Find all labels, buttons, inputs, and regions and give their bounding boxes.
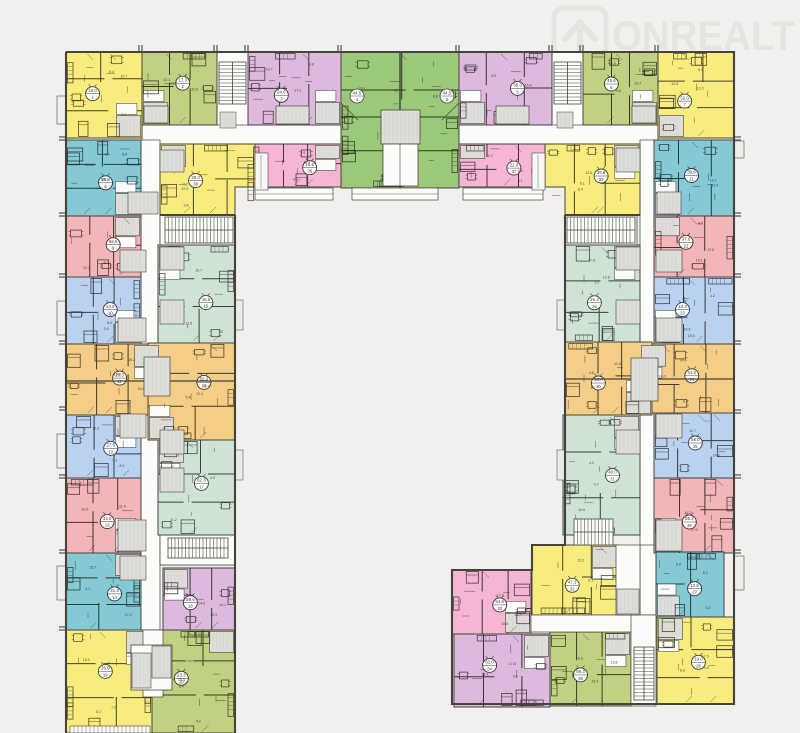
svg-text:45.6: 45.6 (607, 78, 616, 83)
svg-text:47.3: 47.3 (568, 580, 577, 585)
svg-text:4.3: 4.3 (293, 178, 298, 182)
svg-text:3.9: 3.9 (300, 151, 305, 155)
svg-text:8.5: 8.5 (698, 222, 703, 226)
svg-text:29.3: 29.3 (191, 175, 200, 180)
svg-text:15.6: 15.6 (525, 84, 532, 88)
svg-text:6.1: 6.1 (580, 181, 585, 185)
svg-text:12.6: 12.6 (191, 88, 198, 92)
svg-text:12.2: 12.2 (497, 593, 504, 597)
svg-text:3.4: 3.4 (105, 153, 110, 157)
svg-text:4.8: 4.8 (589, 371, 594, 375)
svg-text:10.1: 10.1 (696, 259, 703, 263)
svg-text:3.4: 3.4 (104, 327, 109, 331)
svg-text:33.6: 33.6 (594, 377, 603, 382)
svg-text:36.6: 36.6 (597, 170, 606, 175)
svg-text:12.4: 12.4 (196, 392, 203, 396)
svg-text:9.9: 9.9 (676, 562, 681, 566)
svg-text:8.4: 8.4 (179, 685, 184, 689)
svg-text:69.6: 69.6 (186, 597, 195, 602)
svg-text:62.3: 62.3 (197, 478, 206, 483)
svg-text:9.0: 9.0 (704, 666, 709, 670)
svg-text:4.9: 4.9 (196, 719, 201, 723)
svg-text:13.2: 13.2 (170, 81, 177, 85)
svg-text:31: 31 (610, 477, 615, 482)
svg-text:8.6: 8.6 (578, 657, 583, 661)
svg-text:27: 27 (692, 590, 697, 595)
svg-text:12.9: 12.9 (609, 62, 616, 66)
svg-text:4.7: 4.7 (594, 482, 599, 486)
svg-text:19: 19 (103, 672, 108, 677)
svg-text:65.3: 65.3 (685, 516, 694, 521)
svg-text:12.0: 12.0 (181, 187, 188, 191)
svg-text:3.0: 3.0 (594, 281, 599, 285)
svg-text:4.2: 4.2 (710, 294, 715, 298)
svg-text:28: 28 (696, 663, 701, 668)
svg-text:23.3: 23.3 (177, 673, 186, 678)
svg-text:38: 38 (193, 182, 198, 187)
svg-text:24.6: 24.6 (277, 90, 286, 95)
svg-text:13.8: 13.8 (611, 660, 618, 664)
svg-text:38.3: 38.3 (513, 83, 522, 88)
svg-text:6.5: 6.5 (121, 113, 126, 117)
svg-text:16.6: 16.6 (578, 508, 585, 512)
svg-text:39: 39 (599, 177, 604, 182)
svg-text:8.4: 8.4 (578, 188, 583, 192)
svg-text:14.2: 14.2 (685, 511, 692, 515)
svg-text:17.6: 17.6 (707, 248, 714, 252)
svg-text:7.7: 7.7 (705, 420, 710, 424)
svg-text:10.3: 10.3 (697, 86, 704, 90)
svg-text:13.7: 13.7 (89, 565, 96, 569)
svg-text:9.7: 9.7 (591, 386, 596, 390)
svg-text:14: 14 (112, 595, 117, 600)
svg-text:27.6: 27.6 (106, 443, 115, 448)
svg-text:26.3: 26.3 (590, 297, 599, 302)
svg-text:34.0: 34.0 (103, 516, 112, 521)
svg-text:16.3: 16.3 (92, 427, 99, 431)
svg-text:3.2: 3.2 (183, 182, 188, 186)
svg-text:12.1: 12.1 (163, 78, 170, 82)
svg-text:4.9: 4.9 (491, 74, 496, 78)
svg-text:58.0: 58.0 (691, 437, 700, 442)
svg-text:15.8: 15.8 (138, 387, 145, 391)
svg-text:37: 37 (512, 169, 517, 174)
svg-text:15.8: 15.8 (501, 622, 508, 626)
svg-text:48.6: 48.6 (202, 297, 211, 302)
svg-text:13.3: 13.3 (577, 558, 584, 562)
svg-text:35: 35 (578, 676, 583, 681)
svg-text:33: 33 (497, 606, 502, 611)
svg-text:9.4: 9.4 (513, 674, 518, 678)
svg-text:44.3: 44.3 (678, 304, 687, 309)
svg-text:23: 23 (680, 311, 685, 316)
svg-text:13.7: 13.7 (514, 613, 521, 617)
svg-text:5.4: 5.4 (186, 396, 191, 400)
svg-text:6.2: 6.2 (703, 571, 708, 575)
svg-text:8.0: 8.0 (119, 464, 124, 468)
svg-text:18: 18 (188, 604, 193, 609)
svg-text:29: 29 (592, 304, 597, 309)
svg-text:8.9: 8.9 (683, 400, 688, 404)
svg-text:14.8: 14.8 (713, 454, 720, 458)
svg-text:7.2: 7.2 (218, 330, 223, 334)
svg-text:34: 34 (487, 666, 492, 671)
svg-text:54.6: 54.6 (495, 599, 504, 604)
svg-text:4.1: 4.1 (85, 587, 90, 591)
svg-text:9.8: 9.8 (616, 89, 621, 93)
svg-text:3.1: 3.1 (518, 179, 523, 183)
svg-text:16.4: 16.4 (114, 373, 121, 377)
svg-text:14.0: 14.0 (198, 602, 205, 606)
svg-text:10.7: 10.7 (120, 74, 127, 78)
svg-text:13.4: 13.4 (203, 384, 210, 388)
svg-text:16.4: 16.4 (303, 161, 310, 165)
svg-text:11.2: 11.2 (170, 518, 177, 522)
svg-text:13.6: 13.6 (585, 171, 592, 175)
svg-text:44.5: 44.5 (353, 90, 362, 95)
svg-text:9.3: 9.3 (104, 261, 109, 265)
svg-text:13: 13 (105, 523, 110, 528)
svg-text:11.0: 11.0 (712, 184, 719, 188)
svg-text:16.7: 16.7 (266, 67, 273, 71)
svg-text:11.7: 11.7 (689, 429, 696, 433)
svg-text:9.4: 9.4 (109, 70, 114, 74)
svg-text:3.9: 3.9 (109, 313, 114, 317)
svg-text:66.6: 66.6 (109, 239, 118, 244)
svg-text:10.9: 10.9 (210, 613, 217, 617)
svg-text:16.0: 16.0 (101, 666, 110, 671)
svg-text:37.0: 37.0 (682, 237, 691, 242)
svg-text:12.1: 12.1 (710, 179, 717, 183)
svg-text:15: 15 (204, 304, 209, 309)
svg-text:5.2: 5.2 (706, 606, 711, 610)
svg-text:4.0: 4.0 (589, 461, 594, 465)
svg-text:13.0: 13.0 (106, 304, 115, 309)
svg-text:7.2: 7.2 (111, 706, 116, 710)
svg-text:17: 17 (199, 484, 204, 489)
svg-text:8.0: 8.0 (107, 321, 112, 325)
svg-text:17.3: 17.3 (178, 77, 187, 82)
svg-text:17.6: 17.6 (588, 259, 595, 263)
svg-text:12.8: 12.8 (603, 276, 610, 280)
svg-text:30: 30 (596, 384, 601, 389)
svg-text:4.9: 4.9 (210, 476, 215, 480)
svg-text:17.2: 17.2 (125, 613, 132, 617)
svg-text:36: 36 (307, 169, 312, 174)
svg-text:12.4: 12.4 (481, 673, 488, 677)
svg-text:11.4: 11.4 (119, 505, 126, 509)
svg-text:12.1: 12.1 (486, 154, 493, 158)
svg-text:10.0: 10.0 (88, 88, 97, 93)
svg-text:9.3: 9.3 (698, 68, 703, 72)
svg-text:8.6: 8.6 (433, 94, 438, 98)
svg-text:6.6: 6.6 (122, 153, 127, 157)
svg-text:17.5: 17.5 (702, 655, 709, 659)
svg-text:61.0: 61.0 (485, 660, 494, 665)
svg-text:30.6: 30.6 (687, 170, 696, 175)
svg-text:51.6: 51.6 (688, 370, 697, 375)
svg-text:22: 22 (684, 243, 689, 248)
svg-text:12.3: 12.3 (83, 266, 90, 270)
svg-text:5.1: 5.1 (588, 579, 593, 583)
svg-text:5.1: 5.1 (113, 459, 118, 463)
svg-text:14.4: 14.4 (680, 358, 687, 362)
svg-text:25: 25 (693, 444, 698, 449)
svg-text:8.3: 8.3 (518, 169, 523, 173)
svg-text:14.1: 14.1 (219, 603, 226, 607)
svg-text:16.6: 16.6 (684, 328, 691, 332)
svg-text:14.0: 14.0 (659, 375, 666, 379)
svg-text:17.1: 17.1 (101, 177, 108, 181)
svg-text:52.0: 52.0 (680, 95, 689, 100)
svg-text:17.8: 17.8 (509, 662, 516, 666)
svg-text:13.7: 13.7 (634, 82, 641, 86)
svg-text:15.3: 15.3 (178, 678, 185, 682)
svg-text:17.2: 17.2 (294, 89, 301, 93)
svg-text:41.3: 41.3 (110, 588, 119, 593)
svg-text:10.8: 10.8 (671, 82, 678, 86)
svg-text:16.2: 16.2 (128, 358, 135, 362)
svg-text:10.6: 10.6 (81, 508, 88, 512)
svg-text:11.6: 11.6 (614, 362, 621, 366)
svg-text:44.5: 44.5 (443, 90, 452, 95)
svg-text:12.6: 12.6 (690, 583, 699, 588)
svg-text:40.0: 40.0 (608, 470, 617, 475)
svg-text:22.0: 22.0 (510, 162, 519, 167)
svg-text:8.6: 8.6 (680, 668, 685, 672)
svg-text:13.8: 13.8 (185, 322, 192, 326)
svg-text:15.4: 15.4 (591, 680, 598, 684)
svg-text:32: 32 (570, 586, 575, 591)
svg-text:12: 12 (108, 449, 113, 454)
svg-text:15.0: 15.0 (83, 658, 90, 662)
svg-text:5.5: 5.5 (573, 598, 578, 602)
svg-text:16.6: 16.6 (688, 334, 695, 338)
svg-text:8.8: 8.8 (309, 63, 314, 67)
svg-text:17.9: 17.9 (691, 528, 698, 532)
svg-text:3.8: 3.8 (184, 204, 189, 208)
svg-text:68.3: 68.3 (576, 669, 585, 674)
svg-text:21: 21 (689, 177, 694, 182)
svg-text:16.7: 16.7 (195, 268, 202, 272)
svg-text:5.1: 5.1 (96, 710, 101, 714)
